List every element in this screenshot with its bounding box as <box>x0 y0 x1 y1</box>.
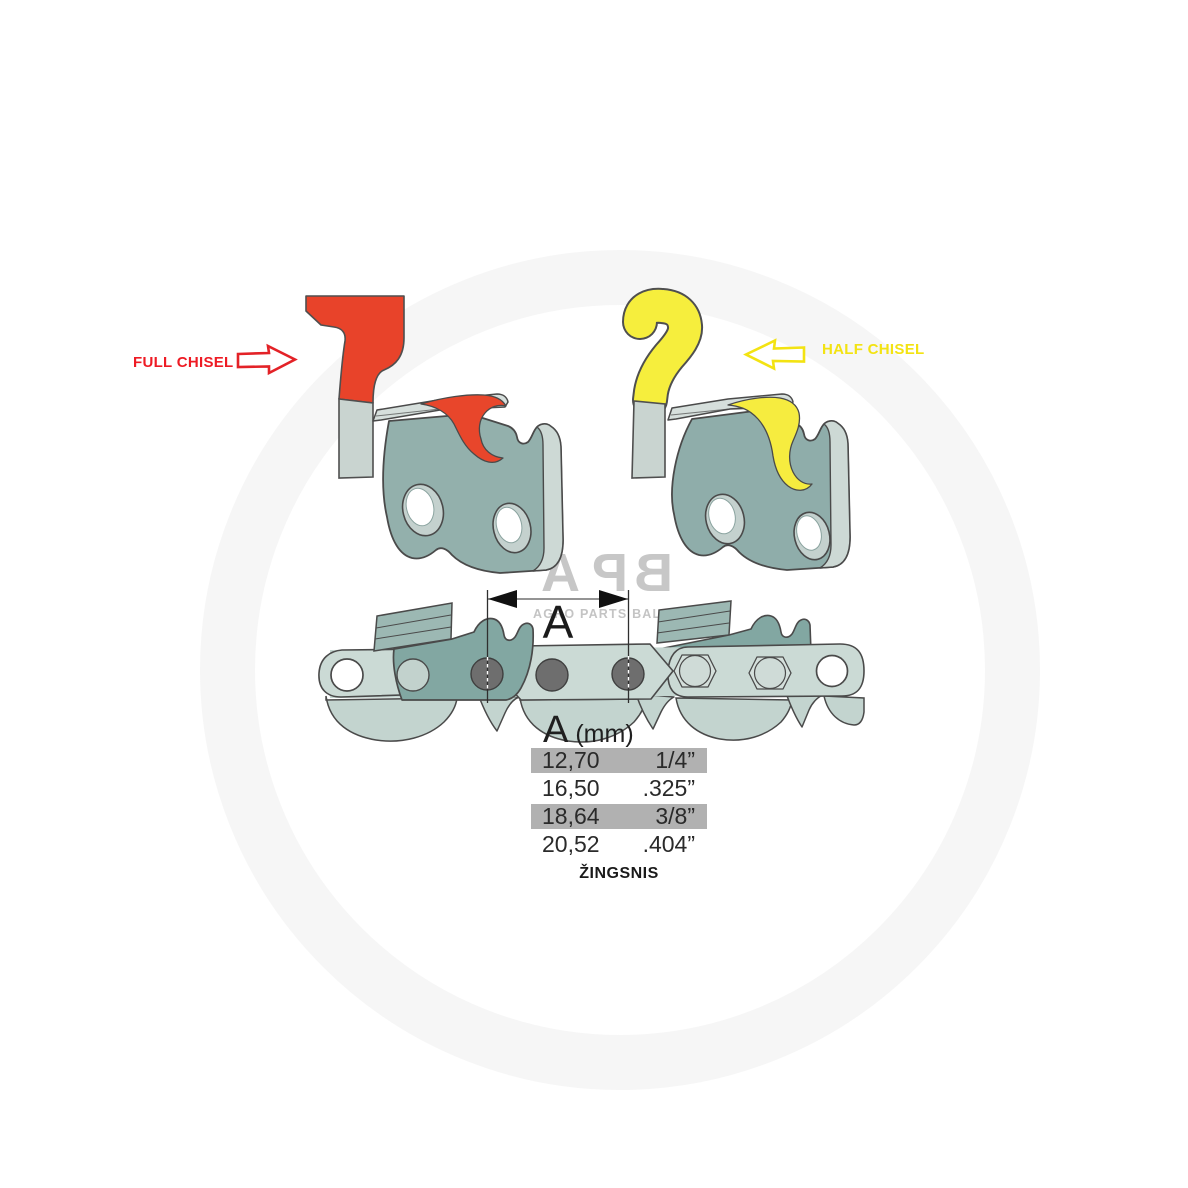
pitch-table-header-letter: A <box>543 712 568 748</box>
strap-hole <box>817 656 848 687</box>
pitch-table-header-unit: (mm) <box>575 720 633 749</box>
full-chisel-arrow-icon <box>238 346 295 373</box>
pitch-inch-value: .404” <box>643 831 695 858</box>
boss-hole <box>680 656 711 687</box>
table-row: 12,70 1/4” <box>531 748 707 773</box>
table-row: 16,50 .325” <box>531 776 707 801</box>
pitch-inch-value: .325” <box>643 775 695 802</box>
pitch-inch-value: 1/4” <box>655 747 695 774</box>
boss-circle <box>397 659 429 691</box>
pitch-table: A (mm) 12,70 1/4” 16,50 .325” 18,64 3/8”… <box>531 712 707 883</box>
pitch-mm-value: 12,70 <box>542 747 600 774</box>
chain-cutter-left <box>374 603 533 700</box>
pitch-caption: ŽINGSNIS <box>531 865 707 883</box>
pitch-mm-value: 18,64 <box>542 803 600 830</box>
half-chisel-steel-stem <box>632 401 665 478</box>
chain-diagram: A <box>0 0 1188 1188</box>
strap-hole <box>331 659 363 691</box>
half-chisel-chrome-cross-section <box>640 306 685 400</box>
rivet <box>536 659 568 691</box>
drive-link <box>824 696 864 725</box>
drive-link-hook <box>786 693 821 727</box>
drive-link <box>326 696 457 741</box>
dimension-letter: A <box>543 596 574 648</box>
table-row: 20,52 .404” <box>531 832 707 857</box>
half-chisel-arrow-icon <box>746 341 804 369</box>
half-chisel-profile <box>632 306 685 478</box>
boss-hole <box>755 658 786 689</box>
full-chisel-label: FULL CHISEL <box>133 354 234 371</box>
full-chisel-chrome-cross-section <box>306 296 404 403</box>
full-chisel-steel-stem <box>339 399 373 478</box>
dimension-arrowhead-right <box>599 590 628 608</box>
pitch-mm-value: 16,50 <box>542 775 600 802</box>
pitch-table-header: A (mm) <box>531 712 707 748</box>
pitch-mm-value: 20,52 <box>542 831 600 858</box>
full-chisel-cutter-link <box>373 394 563 573</box>
table-row: 18,64 3/8” <box>531 804 707 829</box>
dimension-arrowhead-left <box>488 590 517 608</box>
half-chisel-label: HALF CHISEL <box>822 341 924 358</box>
half-chisel-cutter-link <box>668 394 850 570</box>
pitch-inch-value: 3/8” <box>655 803 695 830</box>
page: { "labels": { "full_chisel": "FULL CHISE… <box>0 0 1188 1188</box>
